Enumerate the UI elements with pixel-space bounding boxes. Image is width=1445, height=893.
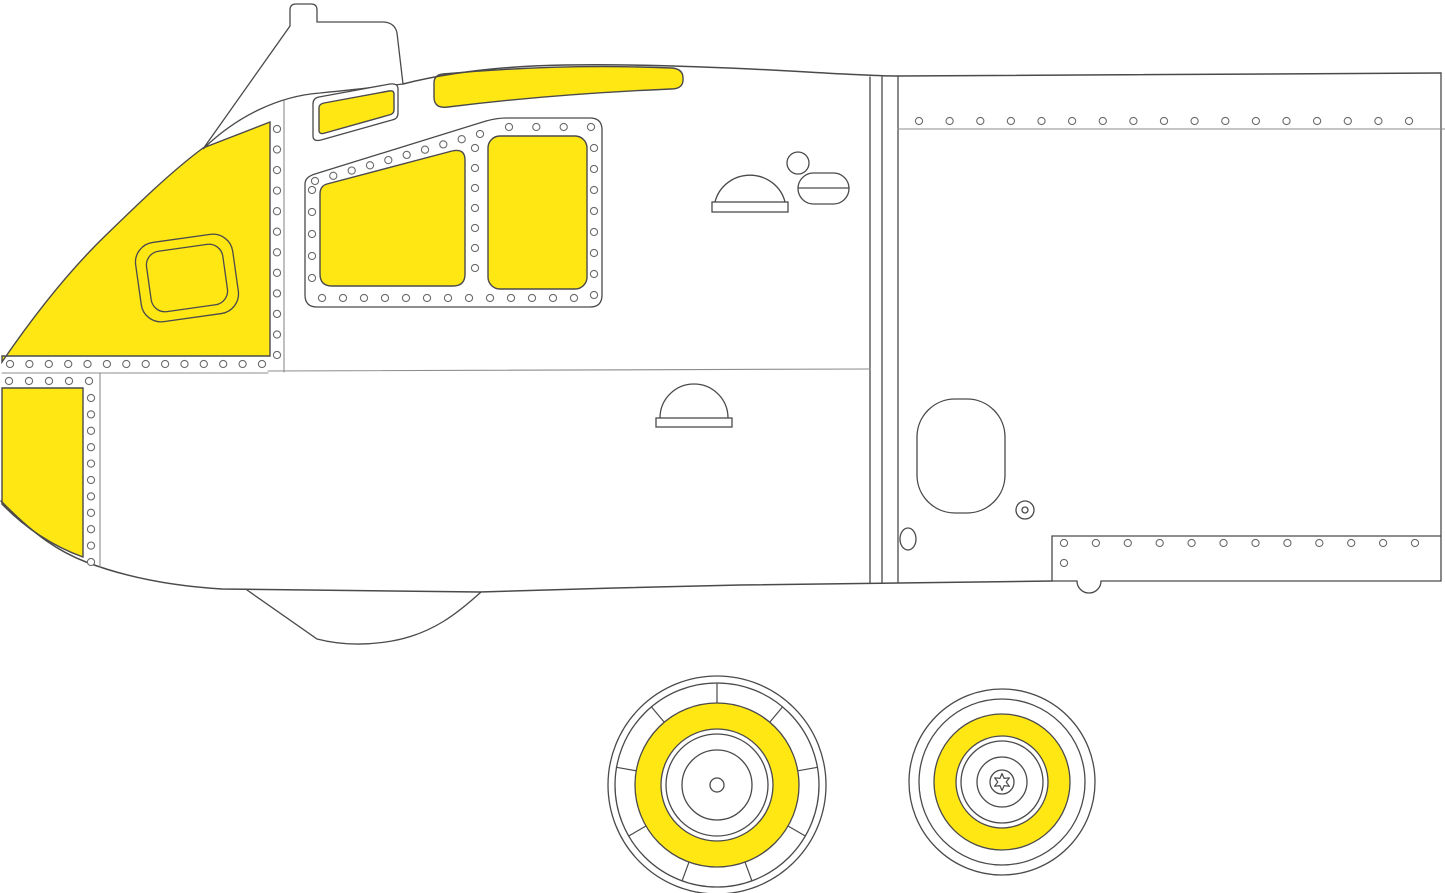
nose-glazing-mask <box>2 122 270 362</box>
rivet-row-upper-right-row <box>915 117 1412 124</box>
rivet-row-cheek-column <box>87 394 94 565</box>
mask-diagram-page <box>0 0 1445 893</box>
main-wheel-mask-hub <box>710 778 724 792</box>
aircraft-mask-diagram <box>0 0 1445 893</box>
hinge-detail <box>900 528 916 550</box>
nose-wheel-mask <box>909 689 1095 875</box>
canopy-strip-mask <box>434 67 683 108</box>
lower-cheek-mask <box>2 388 83 557</box>
upper-fairing-dome <box>712 175 788 212</box>
rivet-row-cheek-row <box>5 377 92 384</box>
belly-fairing-outline <box>247 590 481 644</box>
mid-fuselage-line <box>268 369 870 371</box>
main-wheel-mask <box>608 676 826 893</box>
lower-right-panel-bottom-with-bump <box>1052 581 1441 593</box>
entry-door-porthole <box>917 399 1005 513</box>
nose-wheel-mask-hub-star <box>995 774 1010 791</box>
rivet-row-lower-right-row <box>1060 539 1418 546</box>
rivet-row-lower-right-single <box>1060 559 1067 566</box>
grommet-detail <box>1016 501 1034 519</box>
rivet-row-nose-column <box>273 125 280 358</box>
side-window-rear-mask <box>488 136 587 289</box>
wheel-masks <box>608 676 1095 893</box>
handle-recess <box>798 173 849 204</box>
small-circle-detail <box>787 152 809 174</box>
fuselage-bottom-outline <box>1 501 1052 592</box>
lower-fairing-dome <box>656 384 732 427</box>
rivet-row-nose-bottom-row <box>6 360 265 367</box>
windscreen-frame <box>203 4 403 149</box>
